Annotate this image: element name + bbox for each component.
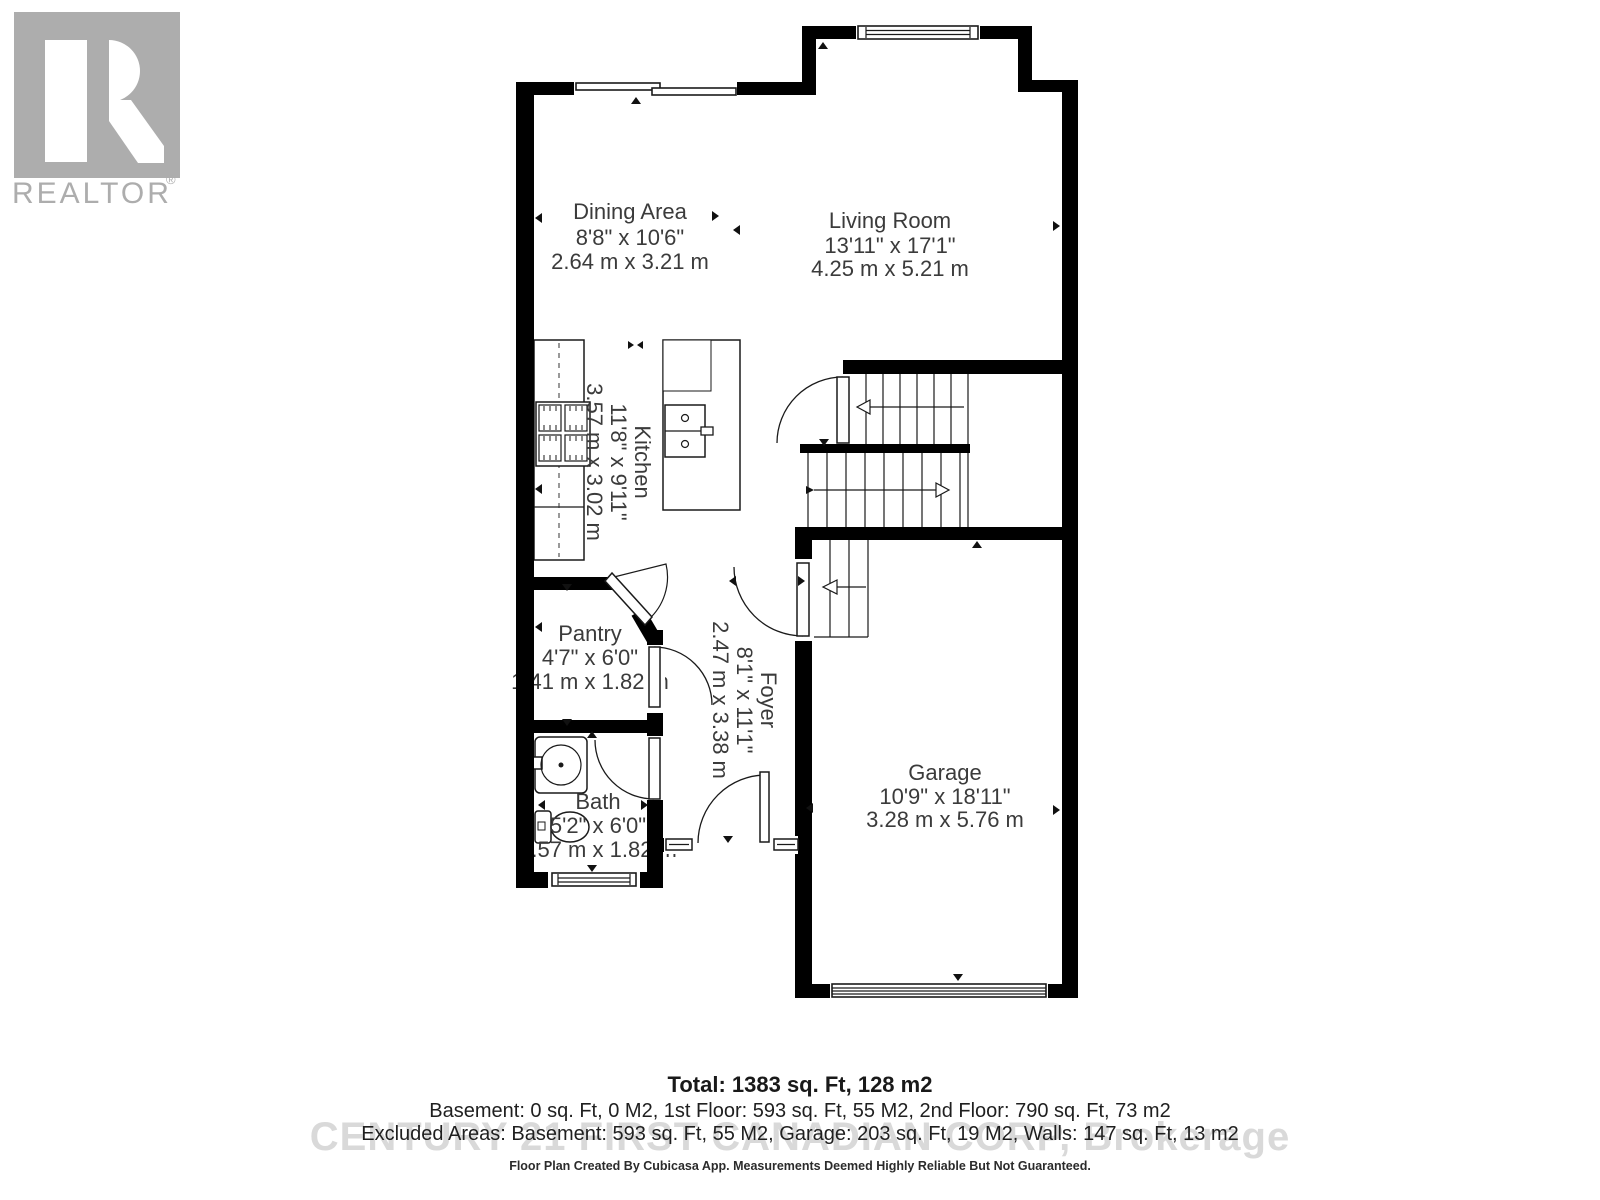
garage-imperial: 10'9" x 18'11" <box>879 784 1010 809</box>
floor-plan-drawing: REALTOR ® <box>0 0 1600 1200</box>
kitchen-name: Kitchen <box>630 425 655 498</box>
label-kitchen: Kitchen 11'8" x 9'11" 3.57 m x 3.02 m <box>582 383 655 541</box>
floor-plan-page: CENTURY 21 FIRST CANADIAN CORP, Brokerag… <box>0 0 1600 1200</box>
staircase <box>806 374 968 637</box>
foyer-pantry-door-leaf <box>649 647 660 707</box>
bath-imperial: 5'2" x 6'0" <box>550 813 646 838</box>
bath-door-leaf <box>649 738 660 799</box>
kitchen-island <box>663 340 740 510</box>
marker-living-right <box>1053 221 1060 231</box>
marker-bath-right <box>641 800 648 810</box>
marker-kitchen-b <box>637 341 643 349</box>
label-garage: Garage 10'9" x 18'11" 3.28 m x 5.76 m <box>866 760 1024 832</box>
wall-bath-top <box>516 720 663 733</box>
garage-name: Garage <box>908 760 981 785</box>
pantry-imperial: 4'7" x 6'0" <box>542 645 638 670</box>
label-living-room: Living Room 13'11" x 17'1" 4.25 m x 5.21… <box>811 208 969 281</box>
pantry-name: Pantry <box>558 621 622 646</box>
dining-metric: 2.64 m x 3.21 m <box>551 249 709 274</box>
marker-pantry-left <box>535 622 542 632</box>
dining-name: Dining Area <box>573 199 688 224</box>
marker-foyer <box>729 576 736 586</box>
registered-mark: ® <box>166 172 176 187</box>
disclaimer-line: Floor Plan Created By Cubicasa App. Meas… <box>0 1159 1600 1173</box>
wall-stair-top <box>843 360 1078 374</box>
living-metric: 4.25 m x 5.21 m <box>811 256 969 281</box>
label-foyer: Foyer 8'1" x 11'1" 2.47 m x 3.38 m <box>708 621 781 779</box>
marker-dining-left <box>535 213 542 223</box>
label-dining-area: Dining Area 8'8" x 10'6" 2.64 m x 3.21 m <box>551 199 709 274</box>
marker-living-left <box>733 225 740 235</box>
total-area-line: Total: 1383 sq. Ft, 128 m2 <box>0 1072 1600 1098</box>
kitchen-metric: 3.57 m x 3.02 m <box>582 383 607 541</box>
wall-left <box>516 82 534 888</box>
bath-window <box>552 873 636 886</box>
foyer-name: Foyer <box>756 672 781 728</box>
garage-metric: 3.28 m x 5.76 m <box>866 807 1024 832</box>
marker-kitchen-a <box>628 341 634 349</box>
living-room-window <box>858 26 978 39</box>
marker-garage-door <box>953 974 963 981</box>
marker-dining-window <box>631 97 641 104</box>
garage-entry-door-leaf <box>797 563 809 636</box>
realtor-logo: REALTOR ® <box>12 12 180 210</box>
marker-bath-left <box>538 800 545 810</box>
bath-name: Bath <box>575 789 620 814</box>
wall-stair-divider <box>800 444 970 453</box>
marker-dining-right <box>712 211 719 221</box>
faucet <box>701 427 713 435</box>
garage-entry-door <box>734 563 809 636</box>
marker-garage-top <box>972 541 982 548</box>
stair-door-leaf <box>837 377 849 443</box>
kitchen-imperial: 11'8" x 9'11" <box>606 403 631 520</box>
pantry-angled-door <box>605 564 668 625</box>
dining-imperial: 8'8" x 10'6" <box>576 225 684 250</box>
foyer-imperial: 8'1" x 11'1" <box>732 647 757 754</box>
wall-garage-top <box>795 527 1078 540</box>
excluded-area-line: Excluded Areas: Basement: 593 sq. Ft, 55… <box>0 1123 1600 1146</box>
living-name: Living Room <box>829 208 951 233</box>
stair-door <box>777 377 849 443</box>
front-door-leaf <box>760 772 769 842</box>
stair-flight-basement <box>812 540 868 637</box>
marker-garage-right <box>1053 805 1060 815</box>
stair-flight-middle <box>806 453 960 527</box>
realtor-logo-text: REALTOR <box>12 177 172 210</box>
floors-area-line: Basement: 0 sq. Ft, 0 M2, 1st Floor: 593… <box>0 1100 1600 1123</box>
living-imperial: 13'11" x 17'1" <box>824 233 955 258</box>
marker-bumpout <box>818 42 828 49</box>
foyer-pantry-door <box>649 647 712 707</box>
stove <box>536 402 590 466</box>
garage-door <box>832 984 1046 997</box>
